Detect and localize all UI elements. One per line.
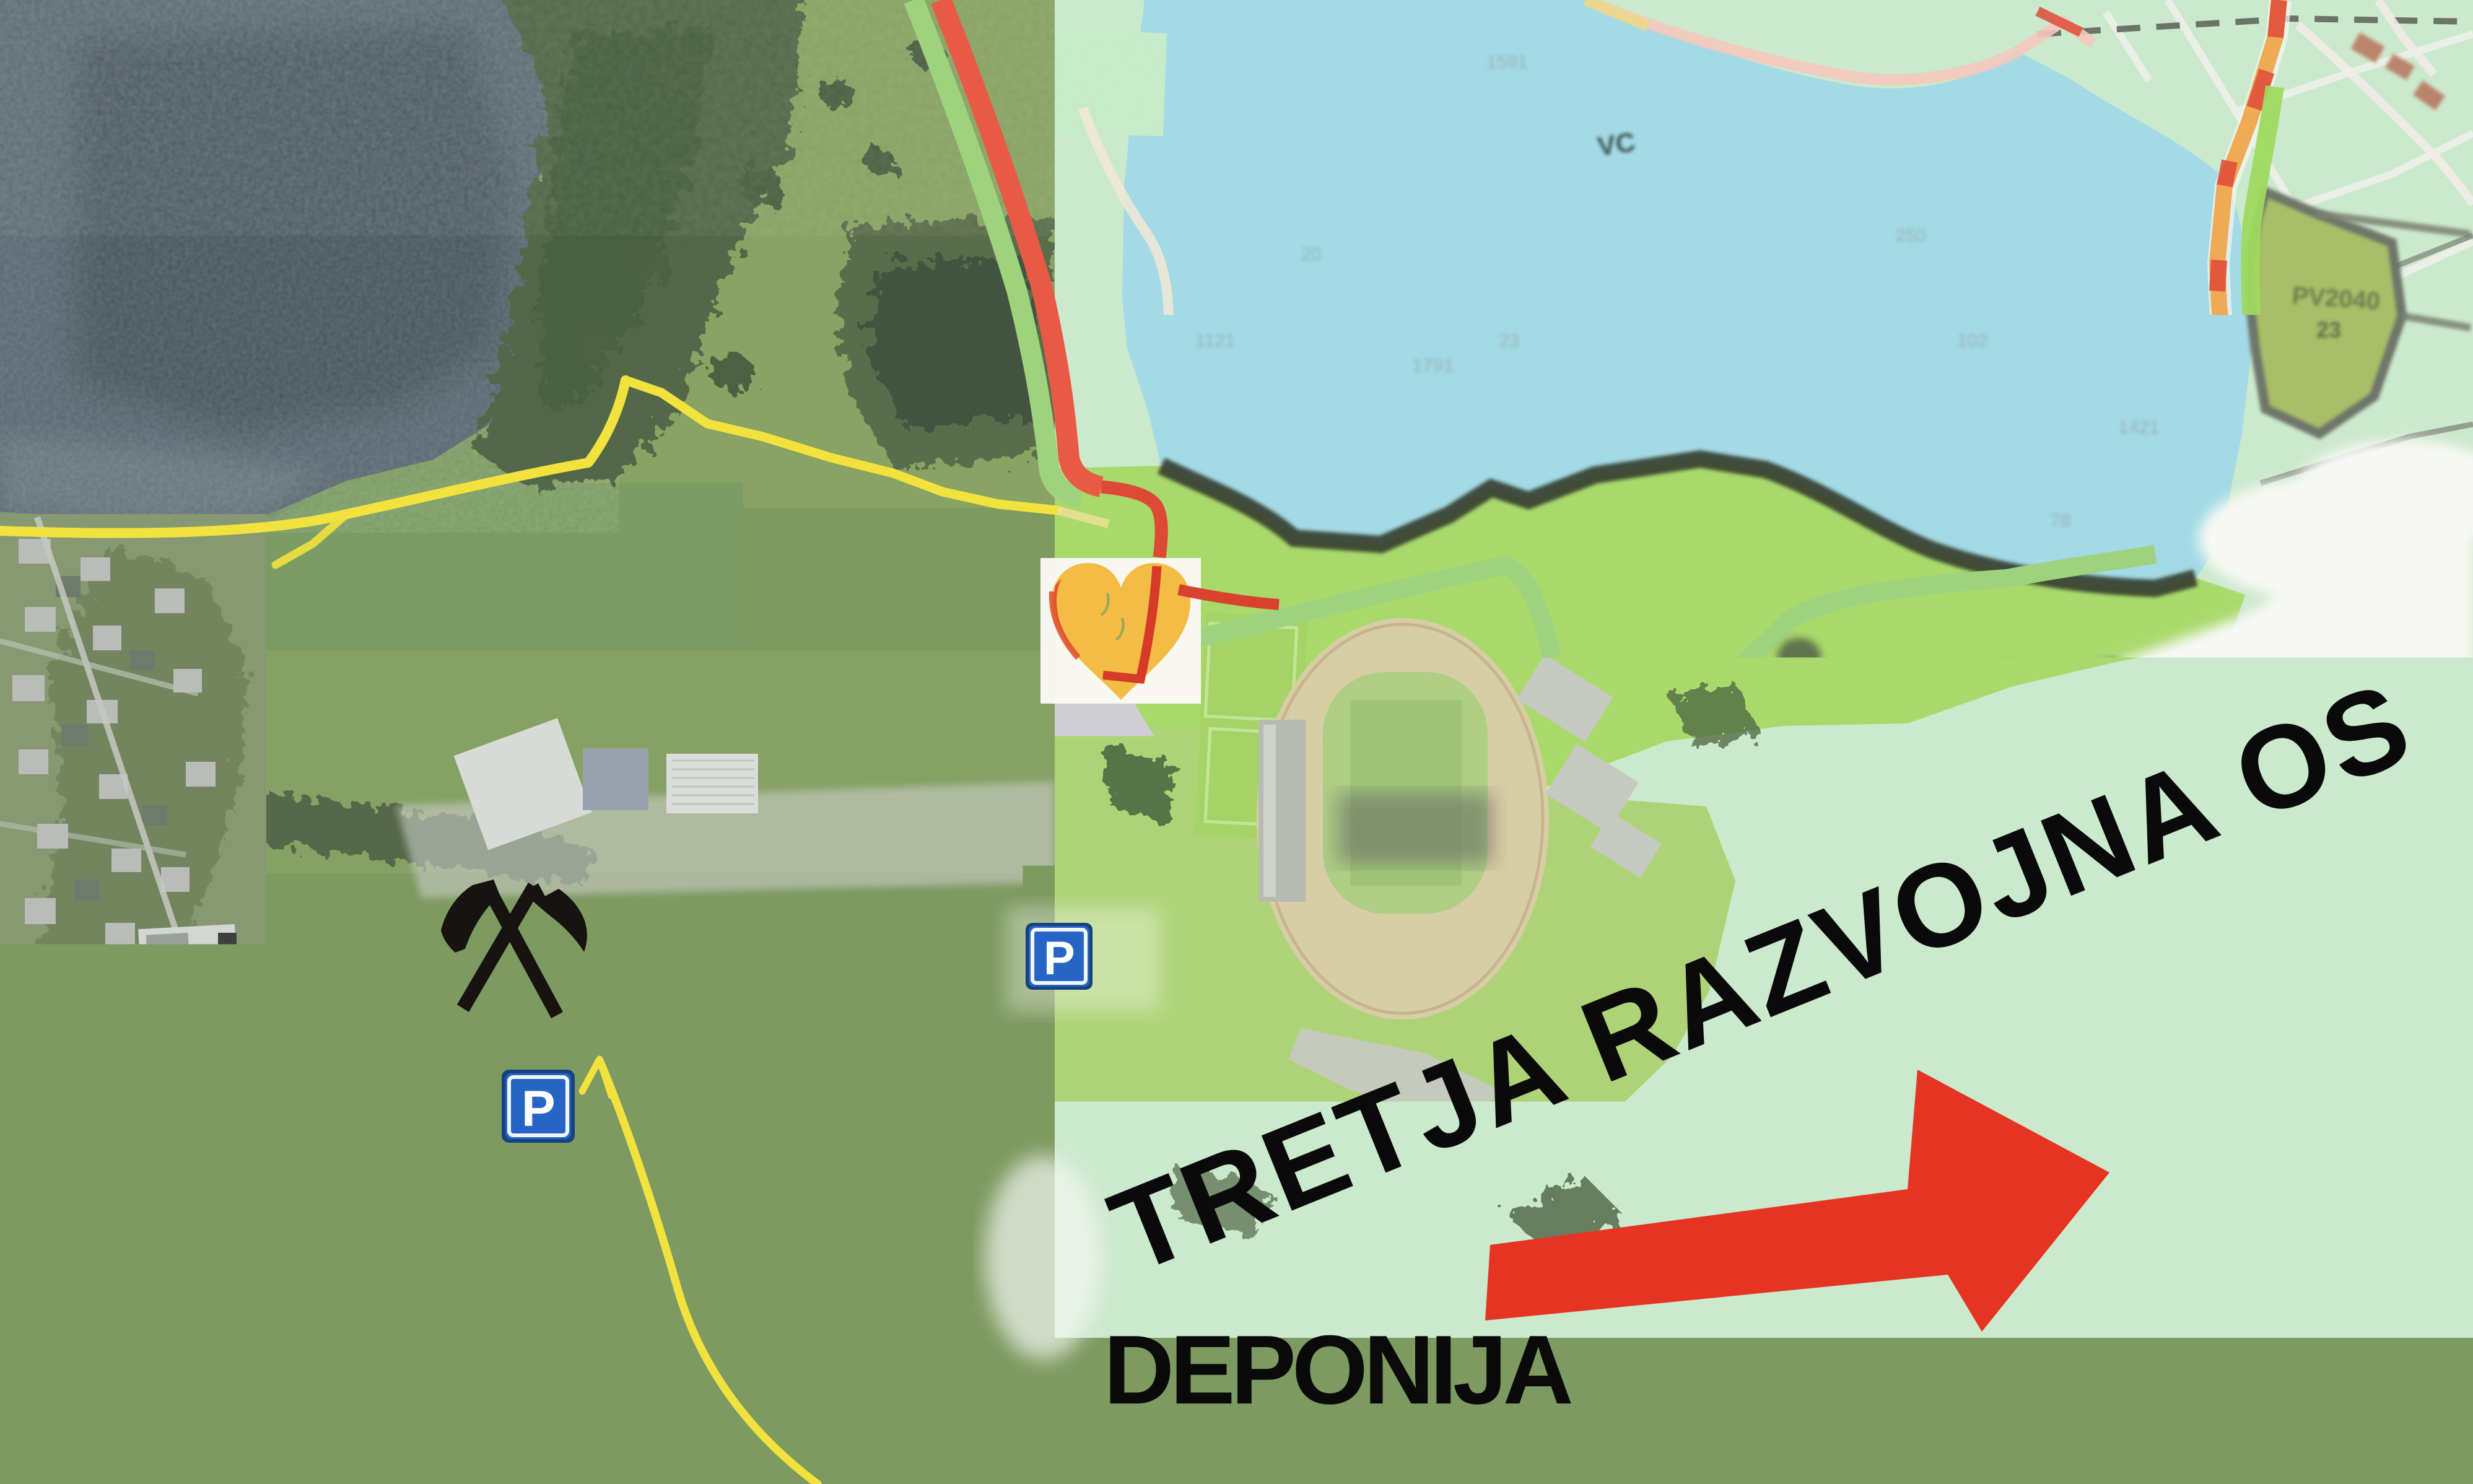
svg-text:DEPONIJA: DEPONIJA	[1104, 1316, 1571, 1425]
svg-text:P: P	[521, 1081, 556, 1137]
svg-text:ŠKALSKO JEZERO: ŠKALSKO JEZERO	[1394, 242, 1926, 300]
svg-text:P: P	[1044, 932, 1075, 985]
